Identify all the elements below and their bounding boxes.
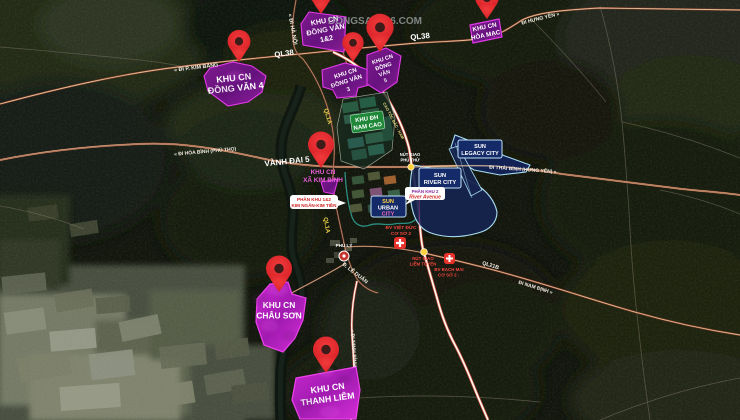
svg-text:SUN: SUN bbox=[434, 173, 446, 179]
svg-text:PHÂN KHU 1&2: PHÂN KHU 1&2 bbox=[297, 196, 331, 202]
svg-text:BV BẠCH MAI: BV BẠCH MAI bbox=[434, 267, 463, 272]
svg-text:XÃ KIM BÌNH: XÃ KIM BÌNH bbox=[303, 175, 343, 184]
svg-text:LEGACY CITY: LEGACY CITY bbox=[461, 151, 499, 157]
svg-text:CƠ SỞ 2: CƠ SỞ 2 bbox=[391, 230, 412, 237]
svg-text:PHÂN KHU 2: PHÂN KHU 2 bbox=[412, 189, 439, 194]
svg-text:NÚT GIAO: NÚT GIAO bbox=[400, 152, 421, 157]
svg-text:KIM NGÂN-KIM TIỀN: KIM NGÂN-KIM TIỀN bbox=[292, 202, 338, 208]
svg-text:CƠ SỞ 2 ↓: CƠ SỞ 2 ↓ bbox=[438, 273, 460, 278]
svg-text:SUN: SUN bbox=[474, 144, 486, 150]
svg-text:KHU CN: KHU CN bbox=[311, 169, 336, 176]
svg-text:PHỦ LÝ: PHỦ LÝ bbox=[336, 242, 353, 248]
svg-text:KHU CN: KHU CN bbox=[263, 300, 296, 310]
svg-text:LIÊM TUYẾN: LIÊM TUYẾN bbox=[410, 262, 437, 267]
svg-text:River Avenue: River Avenue bbox=[409, 195, 441, 201]
svg-text:NÚT GIAO: NÚT GIAO bbox=[412, 256, 434, 261]
svg-text:CHÂU SƠN: CHÂU SƠN bbox=[256, 310, 301, 321]
svg-text:SUN: SUN bbox=[382, 199, 394, 205]
svg-text:PHÚ THỨ: PHÚ THỨ bbox=[400, 158, 420, 163]
svg-text:RIVER CITY: RIVER CITY bbox=[424, 180, 457, 186]
svg-text:CITY: CITY bbox=[382, 212, 395, 218]
